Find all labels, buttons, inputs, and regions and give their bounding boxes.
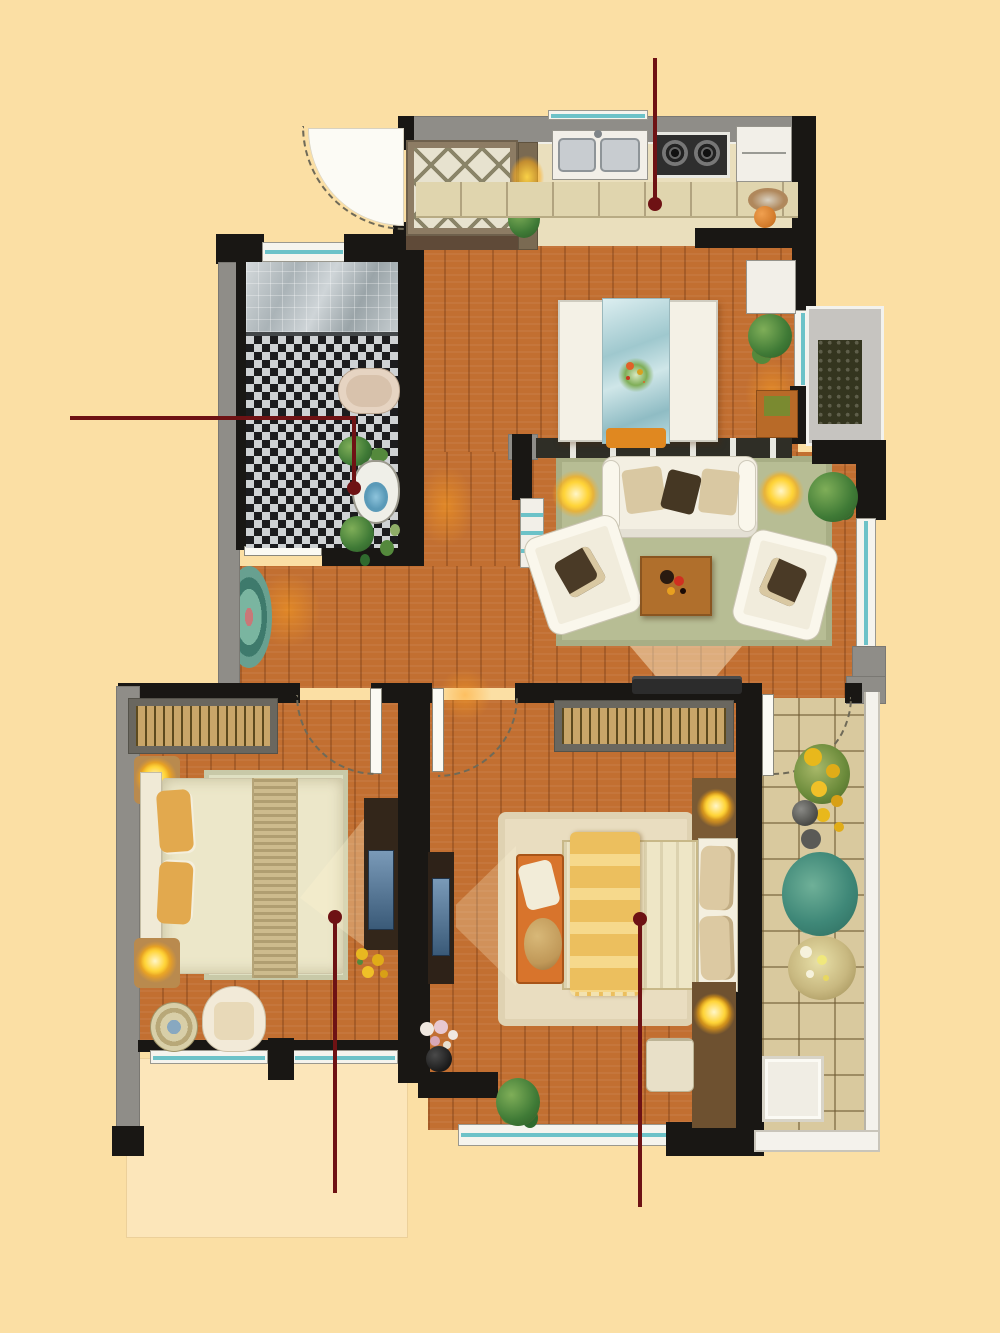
bedroom2-lamp-bottom-core: [696, 994, 732, 1030]
dining-cabinet-plant: [748, 314, 792, 358]
bedroom1-window-left: [150, 1050, 268, 1064]
leader-dot-kitchen: [648, 197, 662, 211]
stove-burner-left: [662, 140, 688, 166]
kitchen-fridge: [736, 126, 792, 182]
balcony-bottom-border: [754, 1130, 880, 1152]
leader-line-kitchen: [653, 58, 657, 206]
dining-candle-mat: [606, 428, 666, 448]
kitchen-sink-basin-left: [558, 138, 596, 172]
sofa-cushion: [698, 468, 740, 516]
bay-window-ledge: [126, 1058, 408, 1238]
wall-bath-right: [398, 234, 424, 564]
balcony-greens-base: [794, 744, 850, 804]
kitchen-faucet: [594, 130, 602, 138]
dining-cabinet: [746, 260, 796, 314]
living-plant: [808, 472, 858, 522]
balcony-flower-cluster: [788, 936, 856, 1000]
living-window-right: [856, 518, 876, 648]
bed1-pillow-bottom: [156, 861, 193, 925]
bathroom-vanity-basin: [346, 375, 392, 407]
bedroom2-tv: [432, 878, 450, 956]
living-lamp-right-core: [762, 472, 800, 510]
foyer-cabinet: [406, 236, 518, 250]
wall-bedroom1-window-stub: [268, 1038, 294, 1080]
balcony-white-mat: [762, 1056, 824, 1122]
bedroom1-wardrobe-hangers: [136, 706, 270, 746]
wall-bedroom2-stub: [418, 1072, 498, 1098]
fridge-handle: [742, 152, 786, 154]
wall-bedroom1-left-cap: [112, 1126, 144, 1156]
bedroom2-dresser-stools: [646, 1038, 694, 1092]
bedroom2-lamp-top-core: [700, 790, 732, 822]
bedroom1-lamp-bottom-core: [138, 944, 172, 978]
leader-line-toilet-v: [352, 416, 356, 488]
leader-line-bedroom1: [333, 917, 337, 1193]
bed1-runner: [252, 778, 298, 978]
toilet-water: [364, 482, 388, 512]
shower-glass: [246, 262, 398, 336]
balcony-teal-plant: [782, 852, 858, 936]
bathroom-window: [262, 242, 346, 262]
balcony-flower-dots: [800, 946, 812, 958]
sofa-cushion: [621, 465, 667, 514]
bed2-blanket-yellow: [570, 832, 640, 996]
dining-centerpiece: [612, 352, 660, 398]
bedroom1-flowers: [356, 948, 368, 960]
balcony-door: [762, 694, 774, 776]
wall-living-left-stub: [512, 434, 532, 500]
bedroom1-tv: [368, 850, 394, 930]
utility-bay-mat: [818, 340, 862, 424]
wall-bedroom2-right: [736, 683, 762, 1127]
bedroom1-window-right: [292, 1050, 398, 1064]
bench-round-cushion: [524, 918, 562, 970]
balcony-right-border: [864, 692, 880, 1152]
wall-kitchen-dining: [695, 228, 798, 248]
leader-line-bedroom2: [638, 919, 642, 1207]
stove-burner-right: [694, 140, 720, 166]
coffee-table-snacks: [660, 570, 674, 584]
leader-dot-toilet: [347, 481, 361, 495]
bed1-pillow-top: [156, 789, 194, 853]
floor-plan-canvas: [0, 0, 1000, 1333]
kitchen-window: [548, 110, 648, 120]
bedroom2-vase-pot: [426, 1046, 452, 1072]
kitchen-sink-basin-right: [600, 138, 640, 172]
bedroom1-round-mat: [150, 1002, 198, 1052]
dining-centerpiece-flowers: [626, 362, 634, 370]
living-tv: [632, 676, 742, 694]
wall-living-right: [856, 440, 886, 520]
bedroom2-plant: [496, 1078, 540, 1126]
leader-line-toilet-h: [70, 416, 354, 420]
bedroom2-vase-flowers: [420, 1022, 434, 1036]
bedroom1-armchair-cushion: [214, 1002, 254, 1040]
kitchen-fruit: [754, 206, 776, 228]
balcony-sunflowers: [804, 748, 822, 766]
bed2-pillow-bottom: [699, 915, 735, 980]
dining-side-cabinet-top: [764, 396, 790, 416]
kitchen-cabinet-band: [416, 182, 798, 218]
entry-door-arc: [302, 126, 406, 230]
bedroom2-wardrobe-hangers: [562, 708, 726, 744]
coffee-table: [640, 556, 712, 616]
bed2-pillow-top: [699, 845, 735, 910]
balcony-pots: [792, 800, 818, 826]
bathroom-plant-bottom: [340, 516, 374, 552]
living-lamp-left-core: [556, 474, 596, 514]
